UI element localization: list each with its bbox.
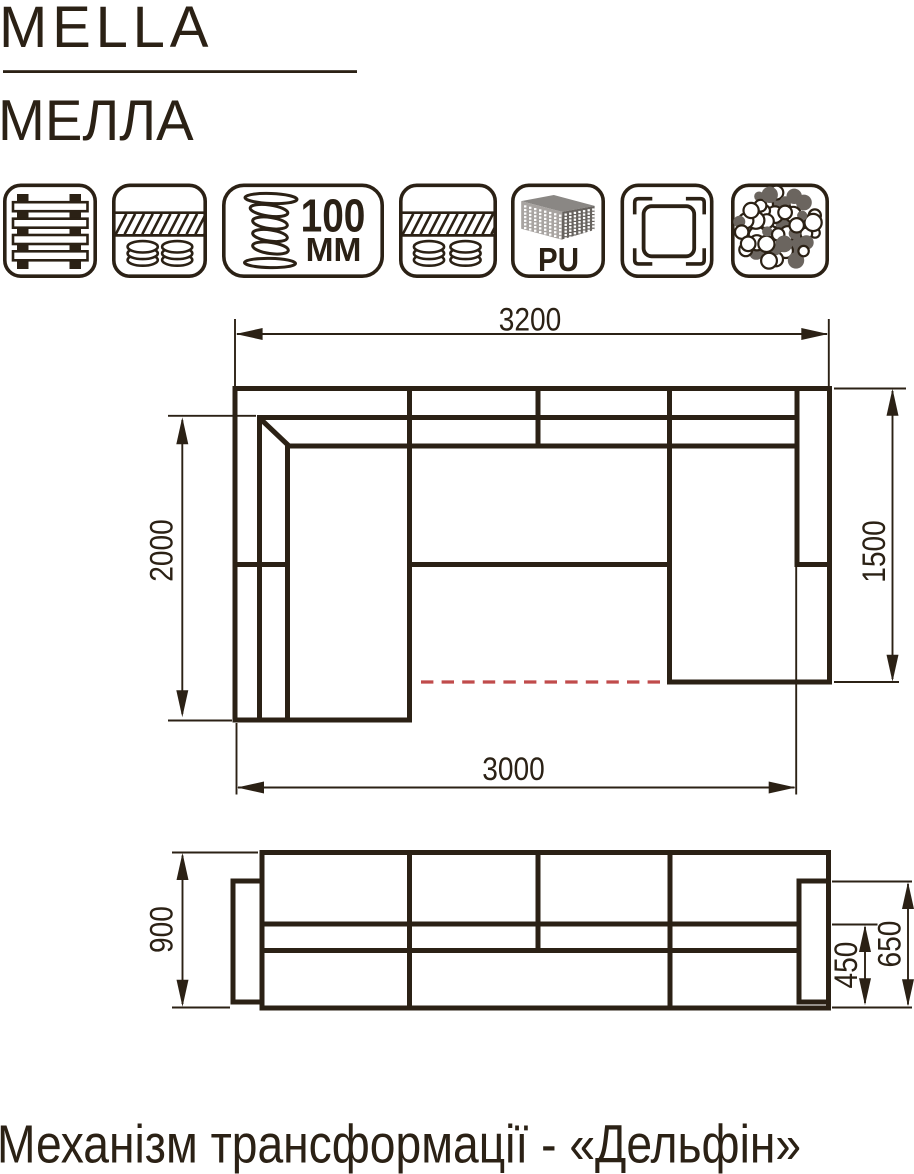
svg-text:3200: 3200 [499,302,562,338]
svg-text:MELLA: MELLA [0,0,213,60]
svg-text:ММ: ММ [306,232,362,269]
svg-text:МЕЛЛА: МЕЛЛА [0,89,194,153]
svg-text:PU: PU [538,240,579,278]
svg-text:450: 450 [828,942,864,989]
svg-text:900: 900 [144,906,180,953]
svg-text:1500: 1500 [856,520,892,583]
svg-text:3000: 3000 [482,751,545,787]
svg-text:2000: 2000 [144,519,180,582]
svg-text:Механізм трансформації - «Дель: Механізм трансформації - «Дельфін» [0,1114,801,1174]
svg-text:650: 650 [872,921,908,968]
